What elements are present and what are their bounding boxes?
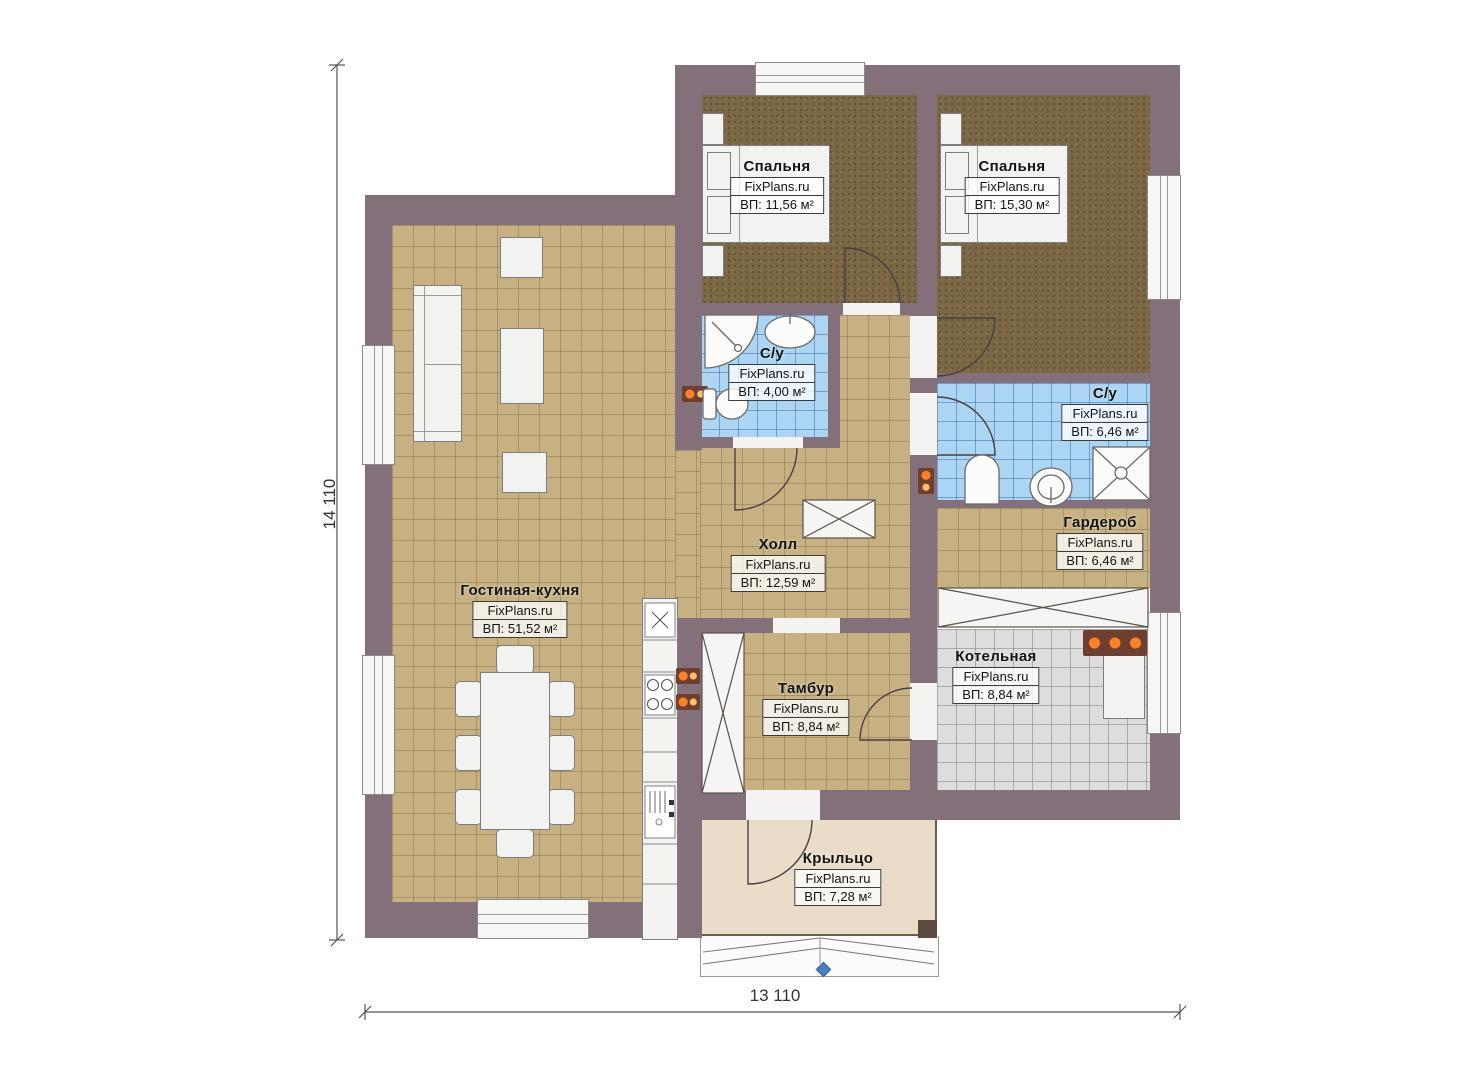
watermark: FixPlans.ru <box>729 365 814 383</box>
floor-plan-canvas: Спальня FixPlans.ru ВП: 11,56 м² Спальня… <box>0 0 1474 1080</box>
room-info-box: FixPlans.ru ВП: 8,84 м² <box>762 699 849 736</box>
door-gap-bathroom-2 <box>910 393 937 455</box>
room-info-box: FixPlans.ru ВП: 11,56 м² <box>730 177 824 214</box>
watermark: FixPlans.ru <box>966 178 1059 196</box>
wall-top-left-section <box>365 195 675 225</box>
nightstand <box>940 245 962 277</box>
coffee-table <box>500 328 544 404</box>
wall-bedroom2-bottom <box>937 373 1150 383</box>
watermark: FixPlans.ru <box>1057 534 1142 552</box>
door-gap-boiler <box>910 683 937 740</box>
room-name: С/у <box>1061 385 1148 402</box>
door-gap-bedroom-1 <box>843 303 900 315</box>
dining-table <box>480 672 550 830</box>
pillow <box>707 152 731 190</box>
room-label-porch: Крыльцо FixPlans.ru ВП: 7,28 м² <box>794 850 881 906</box>
room-area: ВП: 6,46 м² <box>1057 552 1142 569</box>
outlet-kitchen-1 <box>676 668 700 684</box>
room-label-bathroom-1: С/у FixPlans.ru ВП: 4,00 м² <box>728 345 815 401</box>
room-label-bedroom-2: Спальня FixPlans.ru ВП: 15,30 м² <box>965 158 1060 214</box>
watermark: FixPlans.ru <box>763 700 848 718</box>
room-area: ВП: 4,00 м² <box>729 383 814 400</box>
window-bedroom-2 <box>1147 175 1181 300</box>
dining-chair <box>455 789 482 825</box>
room-label-wardrobe: Гардероб FixPlans.ru ВП: 6,46 м² <box>1056 514 1143 570</box>
room-area: ВП: 12,59 м² <box>732 574 825 591</box>
room-info-box: FixPlans.ru ВП: 15,30 м² <box>965 177 1060 214</box>
wall-top-right-section <box>675 65 1180 95</box>
outlet-kitchen-2 <box>676 694 700 710</box>
armchair-bottom <box>502 452 547 493</box>
dimension-height: 14 110 <box>320 449 340 559</box>
armchair-top <box>500 237 543 278</box>
nightstand <box>940 113 962 145</box>
room-info-box: FixPlans.ru ВП: 51,52 м² <box>473 601 568 638</box>
kitchen-counter <box>642 598 678 940</box>
dining-chair <box>548 789 575 825</box>
room-name: Котельная <box>952 648 1039 665</box>
outlet-bathroom-2 <box>918 468 934 494</box>
door-gap-bathroom-1 <box>733 437 803 448</box>
room-name: Спальня <box>730 158 824 175</box>
room-area: ВП: 11,56 м² <box>731 196 823 213</box>
room-label-living-kitchen: Гостиная-кухня FixPlans.ru ВП: 51,52 м² <box>460 582 579 638</box>
dining-chair <box>455 681 482 717</box>
room-label-boiler: Котельная FixPlans.ru ВП: 8,84 м² <box>952 648 1039 704</box>
room-area: ВП: 6,46 м² <box>1062 423 1147 440</box>
window-bedroom-1 <box>755 62 865 96</box>
door-gap-entrance <box>746 790 820 820</box>
window-living-left-1 <box>362 345 395 465</box>
opening-hall-vestibule <box>773 618 840 633</box>
room-label-hall: Холл FixPlans.ru ВП: 12,59 м² <box>731 536 826 592</box>
door-gap-bedroom-2 <box>910 316 937 378</box>
porch-pillar <box>918 920 937 938</box>
window-living-left-2 <box>362 655 395 795</box>
room-info-box: FixPlans.ru ВП: 12,59 м² <box>731 555 826 592</box>
room-info-box: FixPlans.ru ВП: 6,46 м² <box>1056 533 1143 570</box>
nightstand <box>702 113 724 145</box>
room-name: С/у <box>728 345 815 362</box>
dining-chair <box>548 735 575 771</box>
room-name: Гостиная-кухня <box>460 582 579 599</box>
watermark: FixPlans.ru <box>953 668 1038 686</box>
outlet-bathroom-1 <box>682 386 708 402</box>
pillow <box>707 196 731 234</box>
dining-chair <box>455 735 482 771</box>
room-name: Спальня <box>965 158 1060 175</box>
watermark: FixPlans.ru <box>732 556 825 574</box>
watermark: FixPlans.ru <box>1062 405 1147 423</box>
dimension-width: 13 110 <box>700 986 850 1006</box>
window-living-bottom <box>477 899 589 939</box>
wall-between-bedrooms <box>917 95 937 303</box>
room-name: Тамбур <box>762 680 849 697</box>
room-name: Холл <box>731 536 826 553</box>
watermark: FixPlans.ru <box>795 870 880 888</box>
room-label-bathroom-2: С/у FixPlans.ru ВП: 6,46 м² <box>1061 385 1148 441</box>
boiler-unit <box>1103 655 1145 719</box>
nightstand <box>702 245 724 277</box>
room-area: ВП: 8,84 м² <box>763 718 848 735</box>
window-boiler-room <box>1147 612 1181 734</box>
room-info-box: FixPlans.ru ВП: 7,28 м² <box>794 869 881 906</box>
boiler-manifold <box>1083 630 1147 656</box>
room-info-box: FixPlans.ru ВП: 6,46 м² <box>1061 404 1148 441</box>
wall-bath2-bottom <box>937 500 1150 508</box>
floor-living-opening <box>675 450 702 618</box>
room-name: Крыльцо <box>794 850 881 867</box>
room-area: ВП: 7,28 м² <box>795 888 880 905</box>
room-area: ВП: 15,30 м² <box>966 196 1059 213</box>
wall-left <box>365 225 392 905</box>
dining-chair <box>548 681 575 717</box>
room-area: ВП: 8,84 м² <box>953 686 1038 703</box>
room-name: Гардероб <box>1056 514 1143 531</box>
watermark: FixPlans.ru <box>731 178 823 196</box>
room-area: ВП: 51,52 м² <box>474 620 567 637</box>
wall-living-right-lower <box>675 618 702 938</box>
room-info-box: FixPlans.ru ВП: 8,84 м² <box>952 667 1039 704</box>
room-info-box: FixPlans.ru ВП: 4,00 м² <box>728 364 815 401</box>
dining-chair <box>496 645 534 674</box>
room-label-bedroom-1: Спальня FixPlans.ru ВП: 11,56 м² <box>730 158 824 214</box>
room-label-vestibule: Тамбур FixPlans.ru ВП: 8,84 м² <box>762 680 849 736</box>
dining-chair <box>496 829 534 858</box>
sofa <box>413 285 462 442</box>
wall-bath1-right <box>828 315 840 448</box>
watermark: FixPlans.ru <box>474 602 567 620</box>
